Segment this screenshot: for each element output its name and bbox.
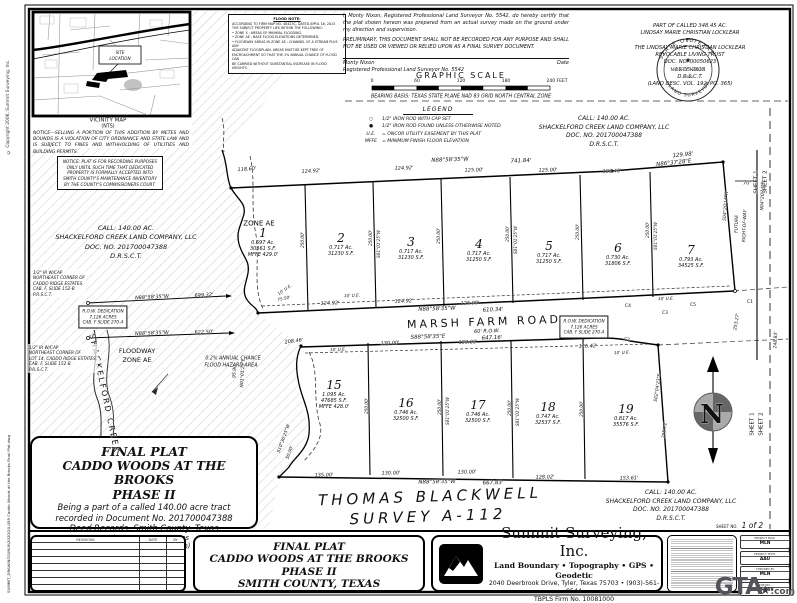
legend-item: ○1/2" IRON ROD WITH CAP SET (362, 117, 514, 123)
owner-line: THE LINDSAY MARIE CHRISTIAN LOCKLEAR (598, 45, 782, 52)
call-line: SHACKELFORD CREEK LAND COMPANY, LLC (38, 233, 214, 242)
call-line: SHACKELFORD CREEK LAND COMPANY, LLC (590, 498, 752, 507)
titleblock-line3: PHASE II (195, 566, 423, 578)
legend-item: U.E.= ONCOR UTILITY EASEMENT BY THIS PLA… (362, 132, 514, 138)
revisions-table: REVISIONSDATEBY (30, 535, 186, 592)
copyright-edge-text: © Copyright 2006, Summit Surveying, Inc. (6, 14, 11, 154)
legend-text: 1/2" IRON ROD WITH CAP SET (382, 117, 514, 123)
call-line: CALL: 140.00 AC. (520, 115, 688, 124)
flood-note-line: BE CARRIED WITHOUT SUBSTANTIAL INCREASE … (232, 62, 342, 71)
gta-watermark: GTA ★ .com (715, 574, 795, 600)
plat-desc-3: Deed Records, Smith County, Texas (32, 523, 256, 534)
legend-symbol: ● (362, 124, 380, 130)
revisions-empty-row (32, 557, 184, 564)
scale-bar (372, 86, 550, 90)
surveyor-certification: I, Monty Nixon, Registered Professional … (343, 13, 569, 73)
owner-line: (LAND DESC. VOL. 192, PG. 365) (598, 81, 782, 88)
flood-note-lines: ACCORDING TO FIRM MAP NO. 48423C, DATED … (232, 22, 342, 71)
site-callout (99, 46, 141, 64)
legend-items: ○1/2" IRON ROD WITH CAP SET●1/2" IRON RO… (362, 117, 514, 144)
sheet-title-block: FINAL PLAT CADDO WOODS AT THE BROOKS PHA… (193, 535, 425, 592)
firm-services: Land Boundary • Topography • GPS • Geode… (487, 561, 661, 580)
flood-note-line: • FLOODWAY AREAS IN ZONE AE : CHANNEL OF… (232, 40, 342, 49)
legend-symbol: U.E. (362, 132, 380, 138)
call-line: D.R.S.C.T. (520, 141, 688, 150)
firm-name: Summit Surveying, Inc. (487, 524, 661, 562)
file-path-edge-text: SUMMIT_DRAWINGS\MLN\2020\20-059 Caddo Wo… (6, 415, 11, 593)
preliminary-statement: PRELIMINARY, THIS DOCUMENT SHALL NOT BE … (343, 37, 569, 51)
sheet-number-value: 1 of 2 (742, 521, 764, 530)
firm-address: 2040 Deerbrook Drive, Tyler, Texas 75703… (487, 580, 661, 596)
call-block-northeast: CALL: 140.00 AC.SHACKELFORD CREEK LAND C… (520, 115, 688, 150)
final-plat-title-box: FINAL PLAT CADDO WOODS AT THE BROOKS PHA… (30, 436, 258, 529)
gta-watermark-main: GTA (715, 574, 762, 600)
project-info-box: PROJECT TECH.AAU (740, 551, 790, 565)
revisions-empty-row (32, 571, 184, 578)
notice-recording: NOTICE: PLAT IS FOR RECORDING PURPOSES O… (57, 156, 163, 190)
plat-sheet: { "edge": { "copyright": "© Copyright 20… (0, 0, 797, 599)
flood-note-line: ENCROACHMENT SO THAT THE 1% ANNUAL CHANC… (232, 53, 342, 62)
revisions-empty-row (32, 578, 184, 585)
call-block-southeast: CALL: 140.00 AC.SHACKELFORD CREEK LAND C… (590, 489, 752, 524)
owner-line: TO (598, 38, 782, 45)
vicinity-map (33, 12, 190, 116)
plat-phase: PHASE II (32, 488, 256, 502)
titleblock-line1: FINAL PLAT (195, 541, 423, 553)
firm-block: Summit Surveying, Inc. Land Boundary • T… (431, 535, 663, 592)
legend-item: MFFE= MINIMUM FINISH FLOOR ELEVATION (362, 139, 514, 145)
call-line: SHACKELFORD CREEK LAND COMPANY, LLC (520, 124, 688, 133)
call-line: CALL: 140.00 AC. (38, 224, 214, 233)
star-icon: ★ (760, 583, 771, 597)
plat-desc-1: Being a part of a called 140.00 acre tra… (32, 502, 256, 513)
owner-line: PART OF CALLED 348.45 AC. (598, 23, 782, 30)
sheet-number: SHEET NO. 1 of 2 (716, 521, 763, 530)
titleblock-line4: SMITH COUNTY, TEXAS (195, 578, 423, 590)
notice-selling: NOTICE—SELLING A PORTION OF THIS ADDITIO… (33, 131, 189, 156)
owner-line: REVOCABLE LIVING TRUST (598, 52, 782, 59)
revisions-empty-row (32, 564, 184, 571)
plat-title: FINAL PLAT (32, 444, 256, 459)
call-line: DOC. NO. 201700047388 (38, 243, 214, 252)
legend-item: ●1/2" IRON ROD FOUND UNLESS OTHERWISE NO… (362, 124, 514, 130)
firm-text: Summit Surveying, Inc. Land Boundary • T… (487, 524, 661, 603)
legend-text: 1/2" IRON ROD FOUND UNLESS OTHERWISE NOT… (382, 124, 514, 130)
call-block-west: CALL: 140.00 AC.SHACKELFORD CREEK LAND C… (38, 224, 214, 262)
project-info-value: MLN (741, 541, 789, 548)
titleblock-line2: CADDO WOODS AT THE BROOKS (195, 553, 423, 565)
call-line: DOC. NO. 201700047388 (520, 132, 688, 141)
signature-date-label: Date (557, 60, 569, 67)
call-line: CALL: 140.00 AC. (590, 489, 752, 498)
revisions-empty-row (32, 585, 184, 592)
owner-line: D.R.S.C.T. (598, 74, 782, 81)
legend: LEGEND ○1/2" IRON ROD WITH CAP SET●1/2" … (362, 106, 514, 146)
legend-title: LEGEND (403, 106, 473, 115)
sheet-number-label: SHEET NO. (716, 524, 738, 529)
revisions-empty-row (32, 550, 184, 557)
plat-subdivision-name: CADDO WOODS AT THE BROOKS (32, 459, 256, 488)
project-info-value: AAU (741, 557, 789, 564)
owner-line: 11-05-2013 (598, 67, 782, 74)
legend-text: = ONCOR UTILITY EASEMENT BY THIS PLAT (382, 132, 514, 138)
legend-text: = MINIMUM FINISH FLOOR ELEVATION (382, 139, 514, 145)
summit-logo-icon (439, 544, 483, 584)
flood-note: FLOOD NOTE: ACCORDING TO FIRM MAP NO. 48… (228, 14, 346, 74)
project-info-box: PROJECT MGR.MLN (740, 535, 790, 549)
legend-symbol: ○ (362, 117, 380, 123)
owner-line: DOC. NO. 00050623 (598, 59, 782, 66)
call-line: DOC. NO. 201700047388 (590, 506, 752, 515)
plat-desc-2: recorded in Document No. 201700047388 (32, 513, 256, 524)
signature-row: Monty Nixon Date (343, 58, 569, 67)
legend-symbol: MFFE (362, 139, 380, 145)
firm-number: TBPLS Firm No. 10081000 (487, 596, 661, 603)
call-line: D.R.S.C.T. (38, 252, 214, 261)
revisions-empty-row (32, 543, 184, 550)
owner-block: PART OF CALLED 348.45 AC.LINDSAY MARIE C… (598, 23, 782, 89)
gta-watermark-tld: .com (771, 587, 795, 597)
signature-title: Registered Professional Land Surveyor No… (343, 67, 569, 74)
cert-paragraph: I, Monty Nixon, Registered Professional … (343, 13, 569, 33)
signature-name: Monty Nixon (343, 60, 374, 67)
owner-line: LINDSAY MARIE CHRISTIAN LOCKLEAR (598, 30, 782, 37)
